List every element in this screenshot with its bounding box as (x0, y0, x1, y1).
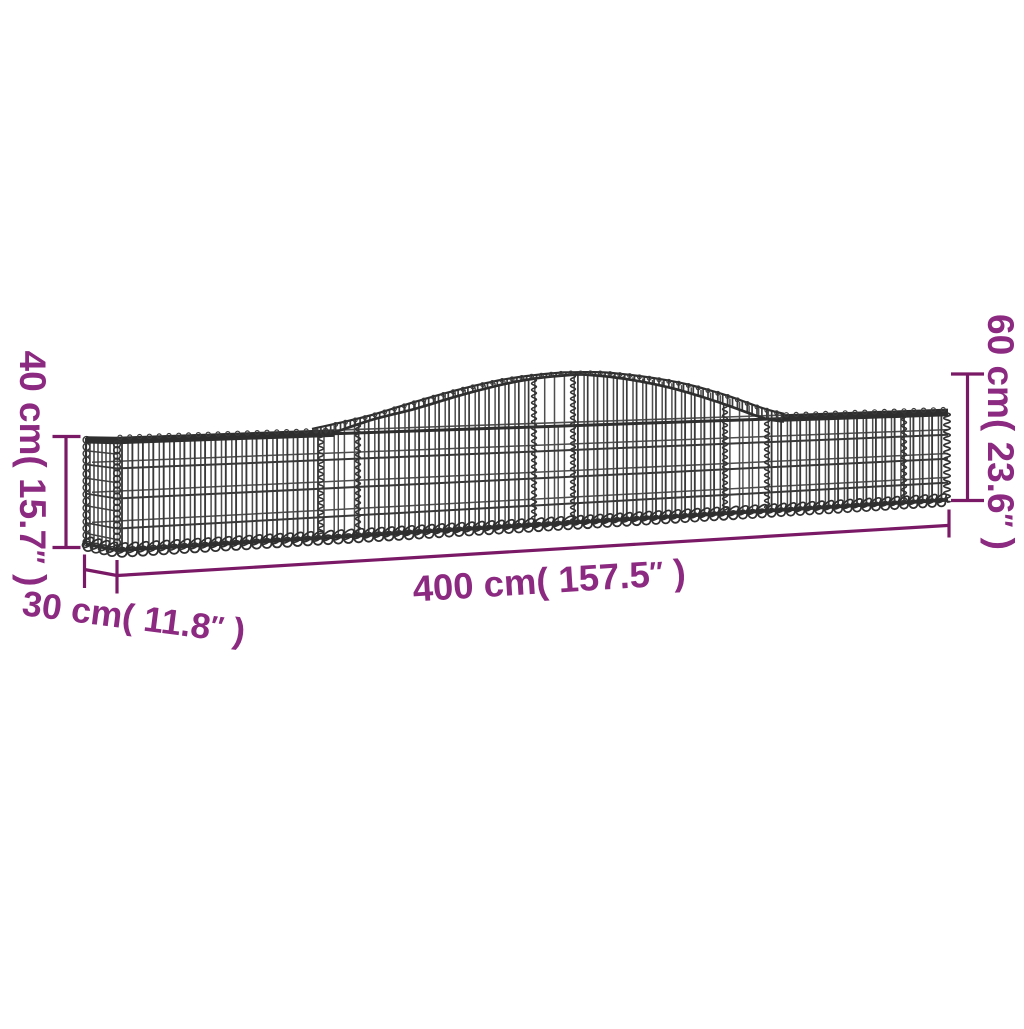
svg-text:40 cm( 15.7″ ): 40 cm( 15.7″ ) (12, 351, 53, 587)
svg-text:60 cm( 23.6″ ): 60 cm( 23.6″ ) (980, 314, 1021, 550)
